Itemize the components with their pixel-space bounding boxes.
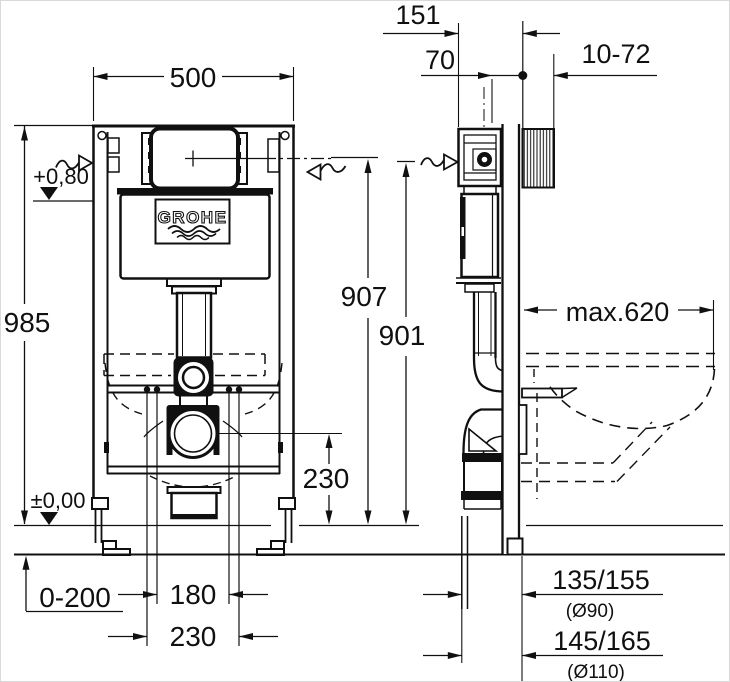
dim-supply-height-label: 901	[379, 320, 426, 351]
floor-level-label: ±0,00	[31, 488, 86, 513]
dim-drain-90-diameter-label: (Ø90)	[566, 601, 615, 622]
drain-elbow-side	[461, 410, 504, 610]
wall-plate	[503, 124, 527, 555]
dim-frame-height-label: 985	[4, 307, 51, 338]
dim-supply-offset: 70	[421, 45, 523, 131]
finished-wall-hatch	[523, 129, 555, 188]
front-view: GROHE	[92, 125, 342, 646]
dim-wall-thickness-label: 10-72	[581, 39, 650, 69]
flush-outlet-arrow	[308, 164, 346, 179]
level-marker-icon	[40, 512, 58, 525]
dim-foot-adjustment: 0-200	[23, 556, 124, 613]
cistern: GROHE	[117, 188, 273, 294]
dim-supply-height: 901	[379, 155, 458, 525]
dim-drain-90-label: 135/155	[552, 565, 650, 595]
dim-top-depth-label: 151	[395, 1, 440, 30]
dim-outlet-height-label: 230	[303, 463, 350, 494]
dim-actuation-height-label: 907	[341, 281, 388, 312]
cistern-body-side	[456, 194, 501, 292]
flush-pipe	[177, 293, 211, 358]
drawing-canvas: GROHE	[1, 1, 730, 682]
level-marker-icon	[40, 187, 58, 200]
flush-pipe-side	[474, 292, 504, 392]
dim-top-depth: 151	[383, 1, 560, 127]
water-flow-arrow-icon	[308, 165, 321, 180]
dim-max-projection: max.620	[524, 297, 714, 370]
grohe-logo-text: GROHE	[158, 208, 228, 227]
dim-drain-110-label: 145/165	[553, 626, 651, 656]
seat-fixing-stud	[522, 388, 577, 398]
dim-max-projection-label: max.620	[566, 297, 670, 327]
installation-drawing: GROHE	[0, 0, 730, 682]
dim-drain-110-diameter-label: (Ø110)	[567, 662, 625, 682]
cistern-head-side	[459, 129, 502, 194]
dim-frame-width: 500	[94, 62, 294, 121]
dim-stud-spacing: 180	[118, 579, 268, 610]
dim-supply-offset-label: 70	[425, 45, 455, 75]
dim-stud-spacing-label: 180	[170, 579, 217, 610]
dim-fixing-spacing-label: 230	[170, 621, 217, 652]
dim-frame-width-label: 500	[170, 62, 217, 93]
flush-plate-opening	[142, 129, 332, 189]
flush-bend-fitting	[174, 358, 214, 406]
dim-foot-adjustment-label: 0-200	[39, 582, 111, 613]
supply-level-label: +0,80	[33, 164, 89, 189]
water-flow-arrow-icon	[444, 155, 458, 170]
supply-level-marker: +0,80	[33, 156, 93, 202]
floor-level-marker: ±0,00	[31, 488, 86, 525]
dim-wall-thickness: 10-72	[554, 39, 657, 129]
drain-outlet	[144, 405, 342, 519]
grohe-logo: GROHE	[156, 200, 230, 244]
dim-fixing-spacing: 230	[108, 621, 278, 652]
bowl-side-dashed	[521, 354, 715, 500]
dim-outlet-height: 230	[303, 434, 350, 525]
dim-drain-110: 145/165 (Ø110)	[423, 626, 663, 682]
